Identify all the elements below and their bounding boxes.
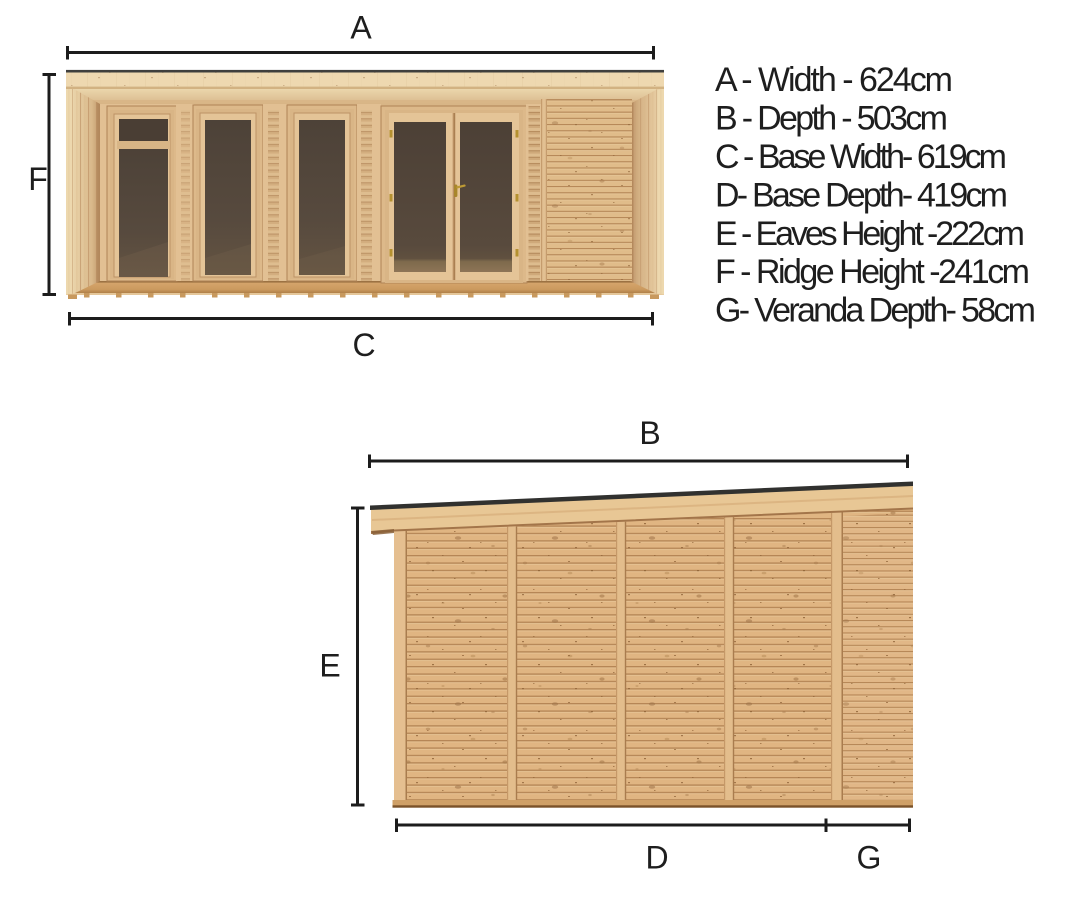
svg-text:G- Veranda Depth- 58cm: G- Veranda Depth- 58cm — [715, 292, 1036, 330]
svg-text:D: D — [645, 840, 668, 876]
svg-text:F - Ridge Height -241cm: F - Ridge Height -241cm — [715, 253, 1030, 291]
svg-text:F: F — [28, 161, 48, 197]
svg-text:D- Base Depth- 419cm: D- Base Depth- 419cm — [715, 176, 1008, 214]
svg-text:E - Eaves Height -222cm: E - Eaves Height -222cm — [715, 215, 1025, 253]
svg-text:B - Depth - 503cm: B - Depth - 503cm — [715, 100, 948, 138]
svg-text:C - Base Width- 619cm: C - Base Width- 619cm — [715, 138, 1007, 176]
svg-text:C: C — [352, 327, 375, 363]
svg-text:B: B — [639, 415, 660, 451]
svg-text:E: E — [319, 648, 340, 684]
svg-text:A: A — [350, 10, 372, 46]
svg-text:A - Width - 624cm: A - Width - 624cm — [715, 61, 953, 99]
svg-text:G: G — [857, 840, 882, 876]
